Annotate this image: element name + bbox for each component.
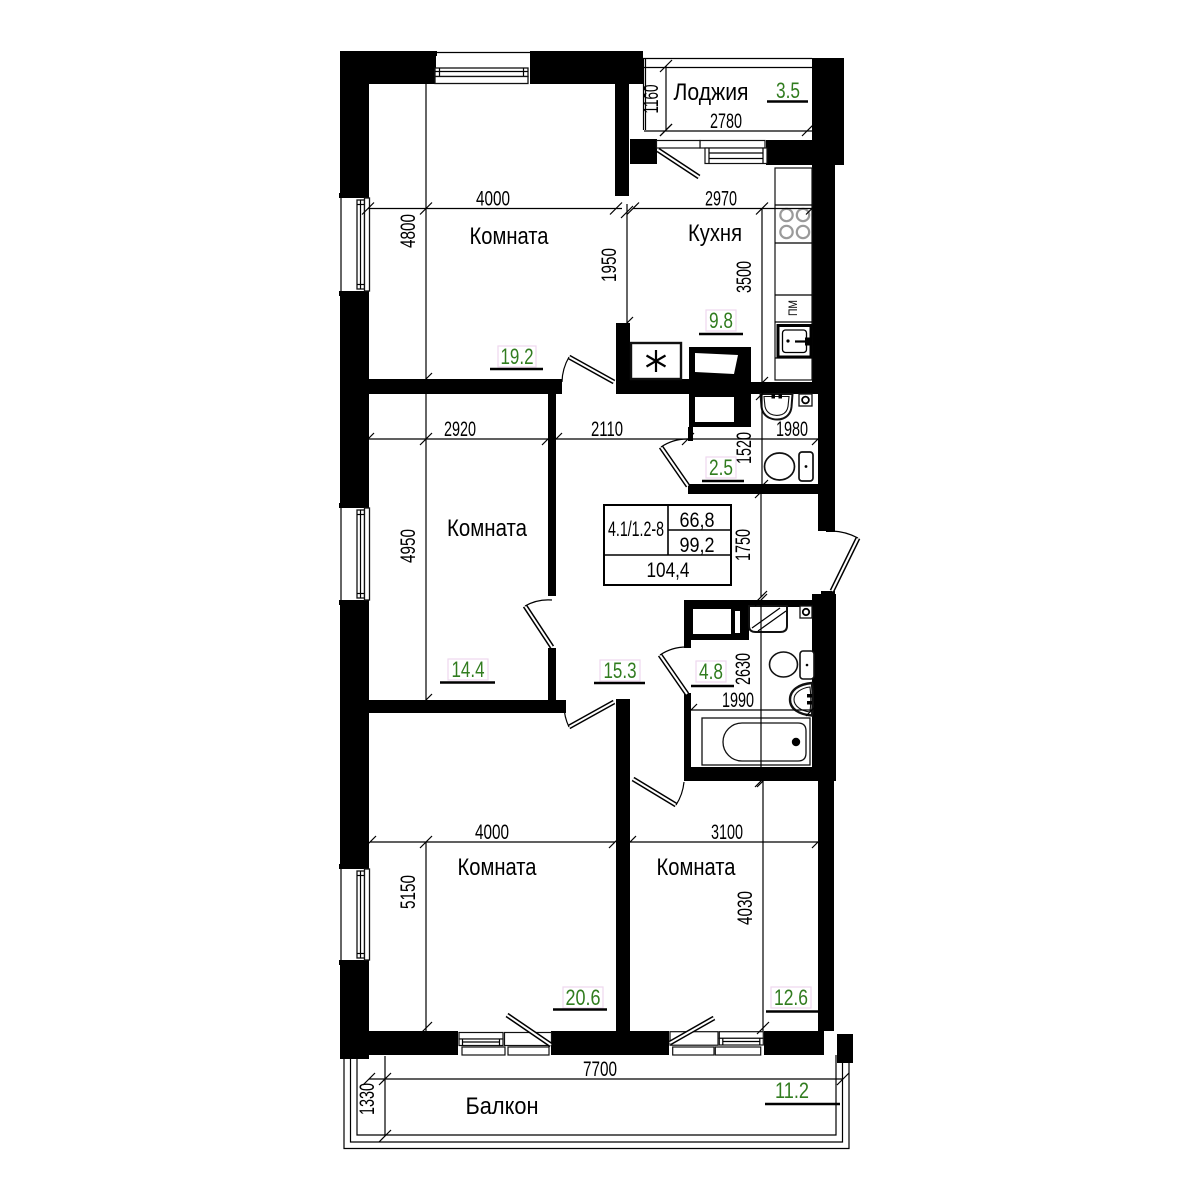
svg-text:3100: 3100 — [711, 821, 743, 844]
svg-text:99,2: 99,2 — [680, 534, 715, 557]
svg-text:Комната: Комната — [470, 223, 550, 250]
svg-text:15.3: 15.3 — [604, 658, 637, 683]
svg-text:2110: 2110 — [591, 418, 623, 441]
svg-text:14.4: 14.4 — [452, 657, 485, 682]
svg-text:Балкон: Балкон — [466, 1093, 539, 1120]
svg-text:ПМ: ПМ — [786, 300, 800, 316]
svg-text:7700: 7700 — [583, 1058, 617, 1081]
svg-text:2920: 2920 — [444, 418, 476, 441]
svg-text:Кухня: Кухня — [688, 220, 742, 247]
svg-text:4.1/1.2-8: 4.1/1.2-8 — [608, 518, 664, 541]
svg-text:9.8: 9.8 — [709, 308, 733, 333]
svg-text:4000: 4000 — [476, 188, 510, 211]
svg-text:19.2: 19.2 — [501, 344, 534, 369]
svg-text:1950: 1950 — [598, 248, 621, 282]
svg-text:2.5: 2.5 — [709, 455, 733, 480]
svg-text:2780: 2780 — [710, 110, 742, 133]
svg-text:4000: 4000 — [475, 821, 509, 844]
svg-text:1980: 1980 — [776, 418, 808, 441]
svg-text:4.8: 4.8 — [699, 659, 723, 684]
svg-text:12.6: 12.6 — [774, 985, 808, 1010]
svg-text:Лоджия: Лоджия — [674, 79, 749, 106]
svg-text:5150: 5150 — [397, 875, 420, 909]
svg-text:1160: 1160 — [640, 85, 663, 114]
svg-text:3500: 3500 — [733, 261, 756, 293]
svg-text:2970: 2970 — [705, 188, 737, 211]
svg-text:4800: 4800 — [397, 214, 420, 248]
svg-text:1990: 1990 — [722, 689, 754, 712]
svg-text:Комната: Комната — [458, 854, 538, 881]
svg-text:104,4: 104,4 — [647, 559, 690, 582]
svg-text:1750: 1750 — [732, 529, 755, 561]
svg-text:66,8: 66,8 — [680, 509, 715, 532]
svg-text:Комната: Комната — [657, 854, 737, 881]
svg-text:4950: 4950 — [397, 529, 420, 563]
svg-text:Комната: Комната — [447, 515, 528, 542]
svg-text:2630: 2630 — [732, 653, 755, 685]
svg-text:1330: 1330 — [356, 1083, 379, 1115]
svg-text:3.5: 3.5 — [776, 78, 800, 103]
svg-text:4030: 4030 — [734, 891, 757, 925]
svg-text:11.2: 11.2 — [775, 1078, 809, 1103]
svg-text:20.6: 20.6 — [566, 985, 601, 1010]
